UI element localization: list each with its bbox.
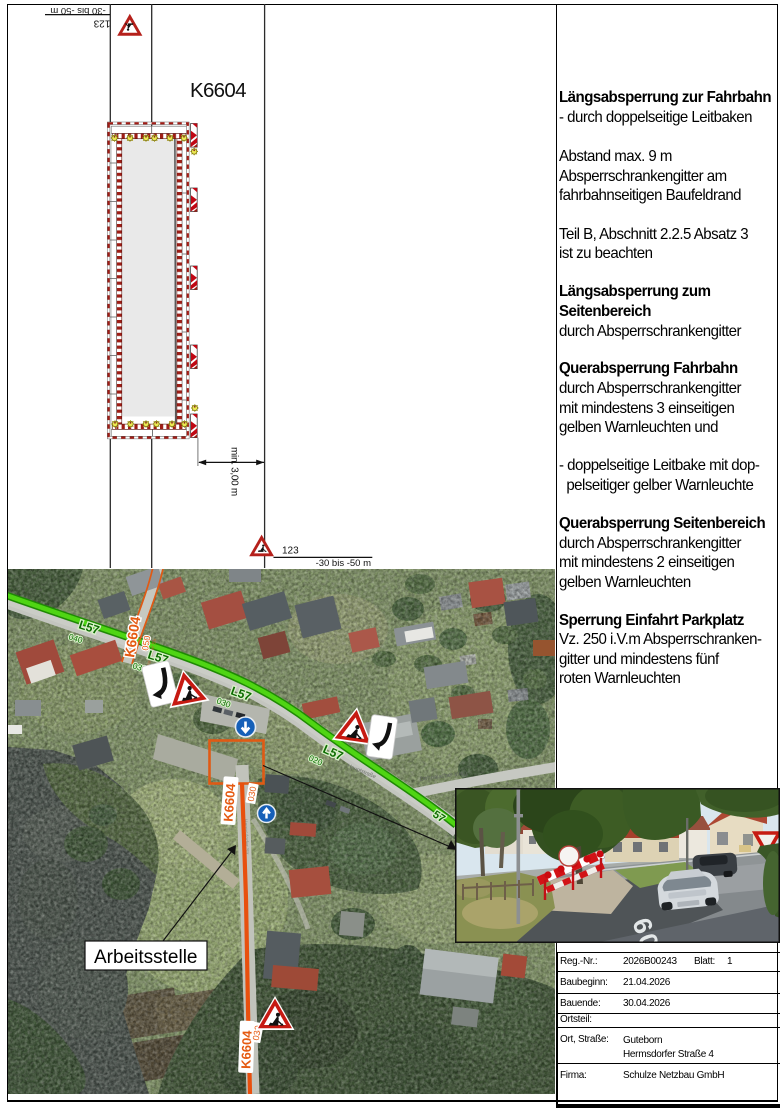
- svg-text:-30 bis -50 m: -30 bis -50 m: [316, 558, 372, 568]
- svg-text:K6604: K6604: [190, 79, 246, 102]
- svg-text:Arbeitsstelle: Arbeitsstelle: [94, 947, 198, 968]
- svg-text:min. 3,00 m: min. 3,00 m: [229, 447, 240, 496]
- svg-text:K6604: K6604: [221, 782, 239, 822]
- svg-text:123: 123: [93, 18, 110, 29]
- svg-text:123: 123: [282, 546, 299, 557]
- svg-text:-30 bis -50 m: -30 bis -50 m: [50, 5, 106, 16]
